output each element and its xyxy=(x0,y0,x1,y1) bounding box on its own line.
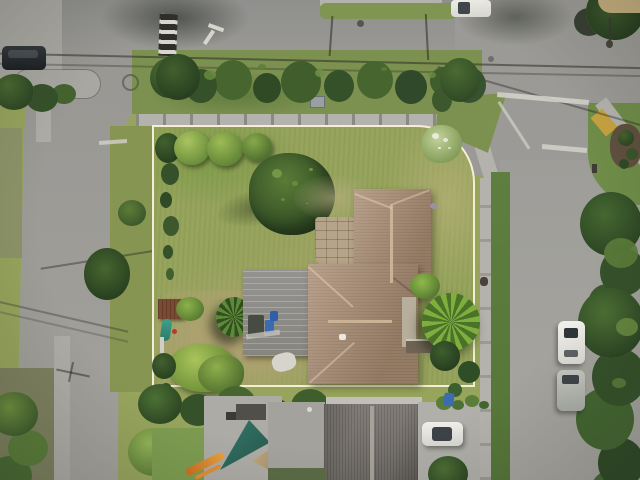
car-right-white-sunroof xyxy=(564,328,578,338)
car-topleft-dark xyxy=(2,46,46,70)
corner-post xyxy=(592,164,597,173)
bushes-se-dark xyxy=(430,341,460,371)
car-topleft-roof xyxy=(8,50,38,58)
car-neighbor-windows xyxy=(432,427,452,441)
palm-parkway-left xyxy=(84,248,130,300)
bush-round-2 xyxy=(207,132,243,166)
bin-blue-2 xyxy=(270,311,278,321)
bush-over-shed xyxy=(176,297,204,321)
bush-round-1 xyxy=(174,131,210,165)
road-dot-2 xyxy=(488,56,494,62)
manhole xyxy=(122,74,139,91)
bush-dark-corner xyxy=(152,353,176,379)
patio-items xyxy=(236,404,266,420)
neighbor-roof-vent xyxy=(307,407,312,412)
utility-box xyxy=(310,96,325,108)
car-neighbor-white xyxy=(422,422,463,446)
red-item xyxy=(172,329,177,334)
big-tree-highlights xyxy=(272,169,282,178)
yard-debris xyxy=(430,203,438,209)
crosswalk-striped-panel xyxy=(158,14,177,57)
canopy-right-bright xyxy=(604,238,638,268)
yellow-curb-topright xyxy=(598,0,640,13)
flowering-tree xyxy=(422,125,462,163)
roof-ridge-upper xyxy=(390,205,393,283)
property-lot xyxy=(152,125,475,387)
palm-seed-pod-tip xyxy=(606,40,613,48)
road-dot-1 xyxy=(357,20,364,27)
neighbor-flat-section xyxy=(268,402,325,468)
palm-seed-pod xyxy=(609,18,611,42)
car-right-silver xyxy=(557,370,585,411)
mulch-plants xyxy=(618,130,634,146)
roof-vent-white xyxy=(339,334,346,340)
corner-trees xyxy=(440,58,480,102)
car-top-white-windows xyxy=(458,2,470,14)
verge-top-center xyxy=(320,3,458,19)
bin-blue-curb xyxy=(443,393,454,407)
roof-ridge-main xyxy=(328,320,392,323)
paver-patio xyxy=(315,217,359,267)
weeds-left-edge xyxy=(0,128,22,258)
veg-row-below-lot xyxy=(138,384,182,424)
palm-by-crosswalk xyxy=(156,54,200,100)
car-right-white xyxy=(558,321,585,364)
sidewalk-left-bottom xyxy=(54,336,70,480)
canopy-right-lower xyxy=(578,288,640,358)
swale-right-strip xyxy=(491,172,510,480)
flowering-tree-blossoms xyxy=(432,133,439,139)
object-on-sidewalk xyxy=(480,277,488,286)
neighbor-lawn-sliver xyxy=(268,468,325,480)
car-right-silver-windshield xyxy=(562,375,579,384)
car-top-white xyxy=(451,0,491,17)
sidewalk-left-top xyxy=(36,92,51,142)
shrub-parkway-left xyxy=(118,200,146,226)
neighbor-roof-ridge xyxy=(370,406,374,480)
car-right-white-rear-window xyxy=(564,350,578,357)
ladder-vertical xyxy=(160,337,164,353)
bush-mound-2 xyxy=(198,355,244,393)
aerial-photo xyxy=(0,0,640,480)
palm-small-east xyxy=(410,273,440,299)
